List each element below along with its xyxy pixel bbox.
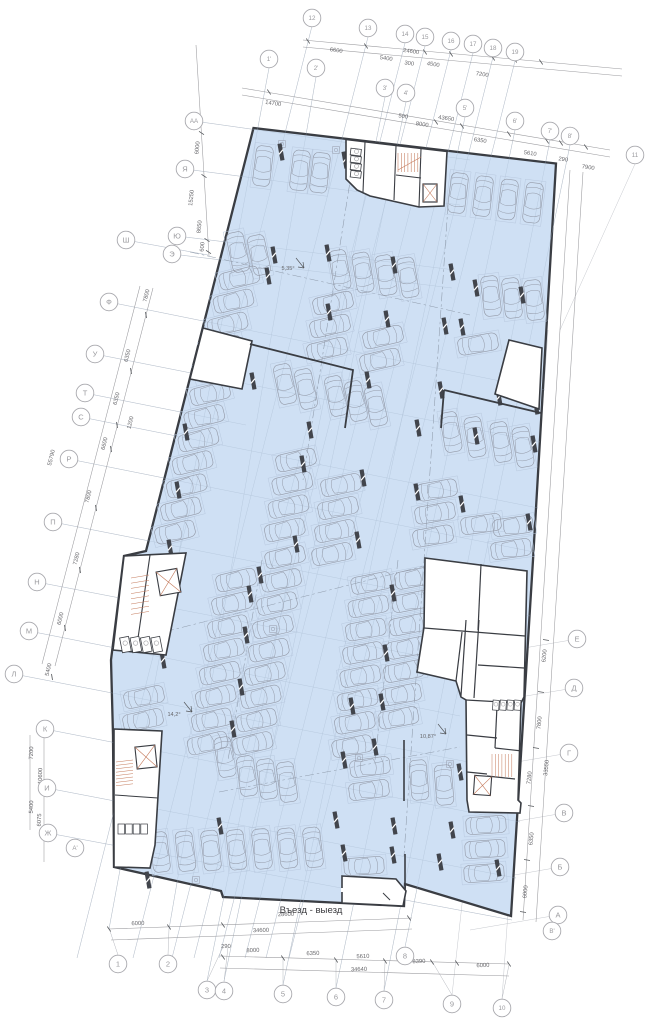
svg-text:П: П: [50, 518, 55, 527]
svg-text:34600: 34600: [253, 928, 269, 935]
svg-text:3: 3: [205, 986, 209, 995]
svg-text:Б: Б: [558, 863, 563, 872]
svg-text:14,2°: 14,2°: [167, 712, 180, 718]
svg-text:5,35°: 5,35°: [281, 266, 294, 272]
svg-text:5400: 5400: [29, 800, 35, 813]
svg-text:15: 15: [422, 34, 429, 41]
svg-text:6075: 6075: [37, 813, 43, 826]
svg-text:5610: 5610: [356, 954, 369, 960]
svg-text:9: 9: [450, 1000, 454, 1009]
svg-text:8000: 8000: [246, 948, 259, 954]
svg-text:1': 1': [267, 56, 272, 63]
svg-text:8': 8': [568, 133, 573, 140]
svg-text:4: 4: [222, 987, 226, 996]
svg-text:Е: Е: [574, 635, 579, 644]
svg-text:6350: 6350: [306, 951, 319, 957]
svg-text:8: 8: [403, 952, 407, 961]
svg-text:Л: Л: [12, 670, 17, 679]
svg-text:К: К: [43, 725, 48, 734]
svg-text:34640: 34640: [351, 967, 367, 974]
svg-text:1: 1: [116, 960, 120, 969]
svg-text:5: 5: [281, 990, 285, 999]
svg-text:17: 17: [470, 41, 477, 48]
svg-text:4': 4': [404, 90, 409, 97]
svg-text:10: 10: [499, 1005, 506, 1012]
svg-text:16: 16: [448, 38, 455, 45]
svg-text:А': А': [72, 845, 77, 852]
svg-text:3': 3': [383, 85, 388, 92]
svg-text:У: У: [93, 350, 98, 359]
svg-text:10,87°: 10,87°: [420, 734, 436, 740]
svg-text:Ш: Ш: [123, 236, 130, 245]
svg-text:13: 13: [365, 25, 372, 32]
svg-text:12: 12: [309, 15, 316, 22]
svg-text:11: 11: [632, 152, 639, 159]
svg-text:6000: 6000: [476, 963, 489, 969]
svg-text:Р: Р: [66, 455, 71, 464]
svg-text:Н: Н: [34, 578, 39, 587]
svg-text:С: С: [78, 413, 84, 422]
svg-text:В: В: [561, 809, 566, 818]
svg-text:600: 600: [200, 242, 207, 252]
svg-text:И: И: [44, 784, 49, 793]
svg-text:М: М: [26, 627, 32, 636]
svg-text:Э: Э: [169, 250, 175, 259]
svg-text:Въезд - выезд: Въезд - выезд: [280, 905, 343, 916]
svg-text:7200: 7200: [29, 746, 35, 759]
svg-text:6': 6': [513, 118, 518, 125]
svg-text:АА: АА: [190, 118, 199, 125]
svg-text:2': 2': [314, 65, 319, 72]
svg-text:14: 14: [402, 31, 409, 38]
svg-text:7': 7': [548, 128, 553, 135]
svg-text:Я: Я: [182, 165, 187, 174]
svg-text:290: 290: [221, 944, 231, 950]
svg-text:Ж: Ж: [45, 829, 52, 838]
svg-text:6000: 6000: [131, 921, 144, 927]
svg-text:В': В': [549, 928, 554, 935]
svg-text:19: 19: [512, 49, 519, 56]
svg-text:5': 5': [463, 105, 468, 112]
svg-text:Г: Г: [567, 749, 571, 758]
svg-text:18: 18: [490, 45, 497, 52]
svg-text:Ю: Ю: [173, 232, 181, 241]
svg-text:7: 7: [382, 996, 386, 1005]
svg-text:Ф: Ф: [106, 298, 112, 307]
svg-text:А: А: [555, 911, 560, 920]
svg-text:6: 6: [334, 993, 338, 1002]
svg-text:8390: 8390: [412, 959, 425, 965]
svg-text:2: 2: [166, 960, 170, 969]
svg-text:Т: Т: [83, 389, 88, 398]
svg-text:Д: Д: [571, 684, 576, 693]
